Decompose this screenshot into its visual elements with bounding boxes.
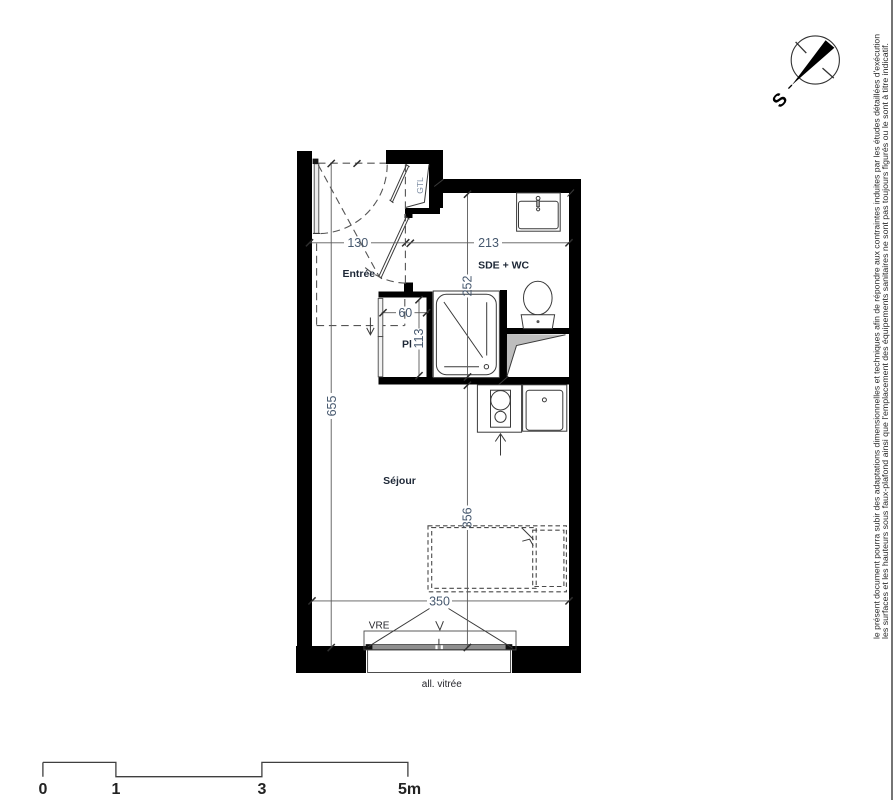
svg-text:655: 655 — [325, 396, 339, 417]
svg-text:1: 1 — [111, 781, 120, 798]
svg-text:5m: 5m — [398, 781, 421, 798]
svg-text:213: 213 — [478, 236, 499, 250]
svg-text:Séjour: Séjour — [383, 475, 416, 487]
svg-text:113: 113 — [412, 328, 426, 348]
svg-text:356: 356 — [460, 507, 474, 528]
svg-text:Pl: Pl — [402, 339, 412, 351]
svg-text:252: 252 — [460, 276, 474, 297]
svg-text:0: 0 — [38, 781, 47, 798]
svg-text:les surfaces et les hauteurs s: les surfaces et les hauteurs sous faux-p… — [880, 43, 890, 639]
svg-text:3: 3 — [257, 781, 266, 798]
svg-text:Entrée: Entrée — [342, 268, 375, 280]
svg-text:all. vitrée: all. vitrée — [422, 679, 462, 690]
svg-text:60: 60 — [398, 306, 412, 320]
svg-text:350: 350 — [429, 594, 450, 608]
svg-text:SDE + WC: SDE + WC — [478, 259, 529, 271]
svg-text:VRE: VRE — [369, 621, 390, 632]
svg-text:130: 130 — [347, 236, 368, 250]
svg-text:GTL: GTL — [415, 177, 425, 194]
